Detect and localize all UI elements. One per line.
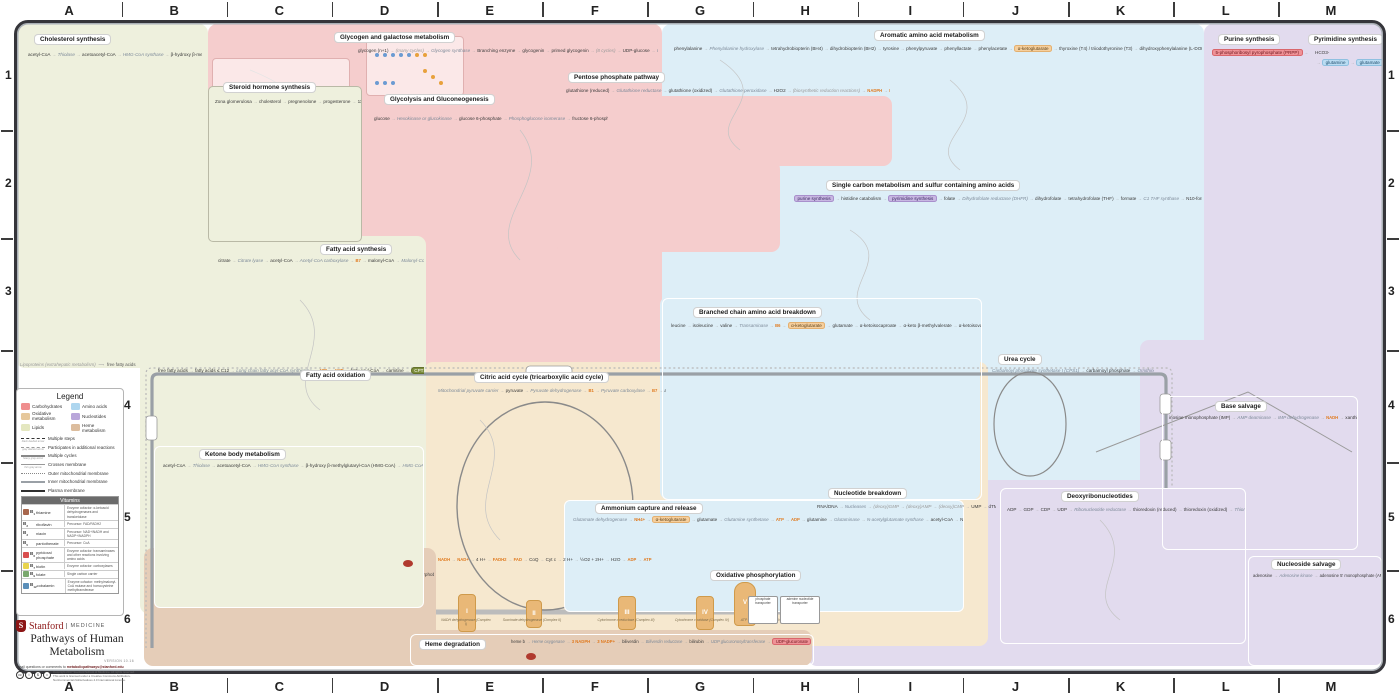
grid-row-label: 4: [1388, 398, 1395, 412]
section-title: Fatty acid oxidation: [300, 370, 371, 381]
grid-tick: [1, 130, 13, 132]
section-content: inosine monophosphate (IMP)→AMP deaminas…: [1163, 397, 1357, 549]
section-title: Aromatic amino acid metabolism: [874, 30, 985, 41]
complex-I-numeral: I: [459, 609, 475, 615]
grid-column-label: M: [1326, 3, 1337, 18]
grid-tick: [437, 678, 439, 693]
grid-tick: [1387, 570, 1399, 572]
heme-b-dot-synthesis: [403, 560, 413, 567]
grid-tick: [1387, 350, 1399, 352]
legend-line-item: heavy gray arrowMultiple cycles: [21, 453, 119, 459]
vitamin-row: B6pyridoxal phosphateEnzyme cofactor: tr…: [22, 547, 118, 562]
vitamin-row: B9folateSingle carbon carrier: [22, 570, 118, 578]
section-title: Cholesterol synthesis: [34, 34, 111, 45]
section-title: Ammonium capture and release: [595, 503, 703, 514]
legend-swatch: Nucleotides: [71, 411, 119, 422]
section-title: Steroid hormone synthesis: [223, 82, 316, 93]
grid-column-label: H: [800, 679, 809, 694]
grid-tick: [1387, 130, 1399, 132]
grid-tick: [542, 2, 544, 17]
grid-tick: [332, 678, 334, 693]
grid-tick: [1, 350, 13, 352]
grid-column-label: I: [908, 3, 912, 18]
section-title: Nucleotide breakdown: [828, 488, 907, 499]
legend-swatch: Oxidative metabolism: [21, 411, 69, 422]
section-content: leucine→isoleucine→valine→Transaminase→B…: [663, 299, 981, 499]
grid-row-label: 5: [124, 510, 131, 524]
section-nucleotide-breakdown: Nucleotide breakdown RNA/DNA→Nucleases→(…: [812, 486, 996, 664]
legend-line-styles: black dashed arrowMultiple stepsgray das…: [21, 436, 119, 494]
grid-tick: [1, 462, 13, 464]
grid-column-label: F: [591, 679, 599, 694]
section-title: Pyrimidine synthesis: [1308, 34, 1383, 45]
grid-tick: [753, 2, 755, 17]
legend-line-item: gray dashed arrowParticipates in additio…: [21, 444, 119, 450]
legend-swatch: Carbohydrates: [21, 403, 69, 410]
legend-swatches: CarbohydratesAmino acidsOxidative metabo…: [21, 403, 119, 433]
section-heme-degradation: Heme degradation heme b→Heme oxygenase→3…: [410, 634, 814, 666]
complex-I-label: NADH dehydrogenase (Complex I): [440, 618, 492, 626]
section-fatty-acid-synthesis: Fatty acid synthesis citrate→Citrate lya…: [212, 240, 424, 364]
section-cholesterol-synthesis: Cholesterol synthesis acetyl-CoA→Thiolas…: [20, 32, 202, 358]
grid-tick: [647, 2, 649, 17]
grid-tick: [1, 570, 13, 572]
section-title: Oxidative phosphorylation: [710, 570, 801, 581]
grid-column-label: E: [485, 3, 494, 18]
grid-tick: [227, 2, 229, 17]
grid-row-label: 2: [1388, 176, 1395, 190]
grid-tick: [1278, 2, 1280, 17]
section-title: Pentose phosphate pathway: [568, 72, 665, 83]
lipoproteins-label: Lipoproteins (extrahepatic metabolism): [20, 362, 96, 367]
section-title: Glycolysis and Gluconeogenesis: [384, 94, 495, 105]
grid-tick: [1387, 462, 1399, 464]
section-aromatic-amino-acids: Aromatic amino acid metabolism phenylala…: [664, 26, 1202, 176]
grid-column-label: I: [908, 679, 912, 694]
section-content: acetyl-CoA→Thiolase→acetoacetyl-CoA→HMG-…: [155, 447, 423, 607]
vitamin-row: B1thiamineEnzyme cofactor: α-ketoacid de…: [22, 504, 118, 519]
grid-row-label: 6: [1388, 612, 1395, 626]
grid-row-label: 1: [1388, 68, 1395, 82]
grid-column-label: G: [695, 3, 705, 18]
complex-I: I: [458, 594, 476, 632]
grid-tick: [1173, 678, 1175, 693]
legend-line-item: Plasma membrane: [21, 487, 119, 493]
legend-line-item: Inner mitochondrial membrane: [21, 479, 119, 485]
grid-tick: [227, 678, 229, 693]
grid-tick: [1, 238, 13, 240]
branding-block: S Stanford MEDICINE Pathways of Human Me…: [16, 620, 138, 682]
grid-column-label: E: [485, 679, 494, 694]
section-title: Glycogen and galactose metabolism: [334, 32, 455, 43]
lipoproteins-note: Lipoproteins (extrahepatic metabolism) ⟶…: [20, 362, 190, 367]
complex-II-numeral: II: [527, 611, 541, 617]
vitamin-row: B5pantothenatePrecursor: CoA: [22, 539, 118, 547]
complex-IV-numeral: IV: [697, 610, 713, 616]
grid-row-label: 1: [5, 68, 12, 82]
grid-column-label: G: [695, 679, 705, 694]
grid-tick: [647, 678, 649, 693]
complex-IV-label: Cytochrome c oxidase (Complex IV): [672, 618, 732, 622]
legend: Legend CarbohydratesAmino acidsOxidative…: [16, 388, 124, 616]
grid-column-label: J: [1012, 679, 1019, 694]
arrow-glyph: ⟶: [98, 362, 104, 367]
grid-tick: [1068, 2, 1070, 17]
section-content: acetyl-CoA→Thiolase→acetoacetyl-CoA→HMG-…: [20, 32, 202, 358]
vitamin-row: B2riboflavinPrecursor: FAD/FADH2: [22, 520, 118, 528]
grid-row-label: 3: [5, 284, 12, 298]
vitamin-row: B3niacinPrecursor: NAD+/NADH and NADP+/N…: [22, 528, 118, 539]
adenine-nucleotide-transporter-box: adenine nucleotide transporter: [780, 596, 820, 624]
section-fatty-acid-oxidation: Fatty acid oxidation free fatty acids→fa…: [152, 362, 424, 444]
grid-column-label: L: [1222, 679, 1230, 694]
complex-III: III: [618, 596, 636, 630]
contact-line: Email questions or comments to metabolic…: [16, 665, 138, 669]
section-title: Ketone body metabolism: [199, 449, 286, 460]
grid-tick: [542, 678, 544, 693]
grid-tick: [437, 2, 439, 17]
vitamin-row: B12cobalaminEnzyme cofactor: methylmalon…: [22, 578, 118, 593]
grid-tick: [332, 2, 334, 17]
complex-II: II: [526, 600, 542, 628]
section-content: 5-phosphoribosyl pyrophosphate (PRPP)→Gl…: [1208, 32, 1308, 416]
section-title: Base salvage: [1215, 401, 1267, 412]
grid-tick: [1387, 238, 1399, 240]
grid-column-label: H: [800, 3, 809, 18]
complex-III-label: Cytochrome c reductase (Complex III): [596, 618, 656, 622]
section-pyrimidine-synthesis: Pyrimidine synthesis HCO3-→glutamine→glu…: [1312, 32, 1384, 416]
cc-by-icon: i: [25, 671, 33, 679]
contact-email: metabolicpathways@stanford.edu: [67, 665, 124, 669]
grid-tick: [858, 678, 860, 693]
grid-column-label: C: [275, 679, 284, 694]
free-fatty-acids-label: free fatty acids: [107, 362, 136, 367]
legend-swatch: Amino acids: [71, 403, 119, 410]
section-content: free fatty acids→fatty acids ≤ C12→Long …: [152, 362, 424, 444]
grid-row-label: 2: [5, 176, 12, 190]
grid-tick: [1068, 678, 1070, 693]
cc-nc-icon: $: [34, 671, 42, 679]
stanford-wordmark: Stanford: [29, 621, 63, 632]
grid-row-label: 5: [1388, 510, 1395, 524]
grid-tick: [963, 2, 965, 17]
cc-nd-icon: =: [43, 671, 51, 679]
grid-column-label: B: [170, 3, 179, 18]
grid-tick: [753, 678, 755, 693]
cc-license-icons: cc i $ =: [16, 671, 51, 679]
section-branched-chain: Branched chain amino acid breakdown leuc…: [662, 298, 982, 500]
section-nucleoside-salvage: Nucleoside salvage adenosine→Adenosine k…: [1248, 556, 1382, 666]
section-title: Urea cycle: [998, 354, 1042, 365]
section-ketone-body: Ketone body metabolism acetyl-CoA→Thiola…: [154, 446, 424, 608]
grid-column-label: J: [1012, 3, 1019, 18]
grid-column-label: F: [591, 3, 599, 18]
section-title: Single carbon metabolism and sulfur cont…: [826, 180, 1020, 191]
phosphate-transporter-box: phosphate transporter: [748, 596, 778, 624]
legend-swatch: Lipids: [21, 423, 69, 434]
section-steroid-hormone: Steroid hormone synthesis Zona glomerulo…: [208, 86, 362, 242]
copyright-text: Copyright 2017 Stanford School of Medici…: [53, 671, 135, 682]
section-content: adenosine→Adenosine kinase→adenosine 5' …: [1249, 557, 1381, 665]
legend-line-item: black dashed arrowMultiple steps: [21, 436, 119, 442]
grid-column-label: B: [170, 679, 179, 694]
section-base-salvage: Base salvage inosine monophosphate (IMP)…: [1162, 396, 1358, 550]
grid-column-label: K: [1116, 3, 1125, 18]
grid-column-label: M: [1326, 679, 1337, 694]
grid-tick: [963, 678, 965, 693]
grid-column-label: C: [275, 3, 284, 18]
section-content: RNA/DNA→Nucleases→(deoxy)GMP→(deoxy)AMP→…: [812, 486, 996, 664]
grid-column-label: D: [380, 679, 389, 694]
section-title: Branched chain amino acid breakdown: [693, 307, 822, 318]
section-title: Citric acid cycle (tricarboxylic acid cy…: [474, 372, 609, 383]
poster-version: VERSION 10.16: [16, 659, 134, 663]
complex-III-numeral: III: [619, 610, 635, 616]
grid-column-label: L: [1222, 3, 1230, 18]
grid-tick: [1173, 2, 1175, 17]
section-content: HCO3-→glutamine→glutamate→2 ATP→2 ADP→Ca…: [1312, 32, 1384, 416]
section-content: citrate→Citrate lyase→acetyl-CoA→Acetyl-…: [212, 240, 424, 364]
grid-tick: [858, 2, 860, 17]
metabolism-poster: { "poster": { "title": "Pathways of Huma…: [0, 0, 1400, 696]
cc-icon: cc: [16, 671, 24, 679]
section-title: Nucleoside salvage: [1271, 559, 1341, 570]
medicine-wordmark: MEDICINE: [66, 623, 105, 629]
heme-b-dot-degradation: [526, 653, 536, 660]
section-content: Zona glomerulosa→cholesterol→pregnenolon…: [209, 87, 361, 241]
complex-IV: IV: [696, 596, 714, 630]
grid-column-label: D: [380, 3, 389, 18]
section-content: phenylalanine→Phenylalanine hydroxylase→…: [664, 26, 1202, 176]
legend-swatch: Heme metabolism: [71, 423, 119, 434]
section-title: Deoxyribonucleotides: [1061, 491, 1139, 502]
section-title: Purine synthesis: [1218, 34, 1280, 45]
stanford-shield-icon: S: [16, 620, 26, 632]
grid-row-label: 3: [1388, 284, 1395, 298]
complex-II-label: Succinate dehydrogenase (Complex II): [500, 618, 564, 622]
grid-tick: [122, 2, 124, 17]
grid-column-label: K: [1116, 679, 1125, 694]
legend-line-item: thin gray arrowCrosses membrane: [21, 462, 119, 468]
legend-line-item: Outer mitochondrial membrane: [21, 470, 119, 476]
section-purine-synthesis: Purine synthesis 5-phosphoribosyl pyroph…: [1208, 32, 1308, 416]
section-single-carbon: Single carbon metabolism and sulfur cont…: [786, 168, 1202, 296]
section-title: Fatty acid synthesis: [320, 244, 392, 255]
grid-row-label: 4: [124, 398, 131, 412]
vitamins-title: Vitamins: [22, 497, 118, 504]
vitamins-table: Vitamins B1thiamineEnzyme cofactor: α-ke…: [21, 496, 119, 594]
grid-column-label: A: [64, 3, 73, 18]
grid-tick: [1278, 678, 1280, 693]
vitamin-row: B7biotinEnzyme cofactor: carboxylases: [22, 562, 118, 570]
legend-title: Legend: [21, 392, 119, 401]
poster-title: Pathways of Human Metabolism: [16, 633, 138, 658]
